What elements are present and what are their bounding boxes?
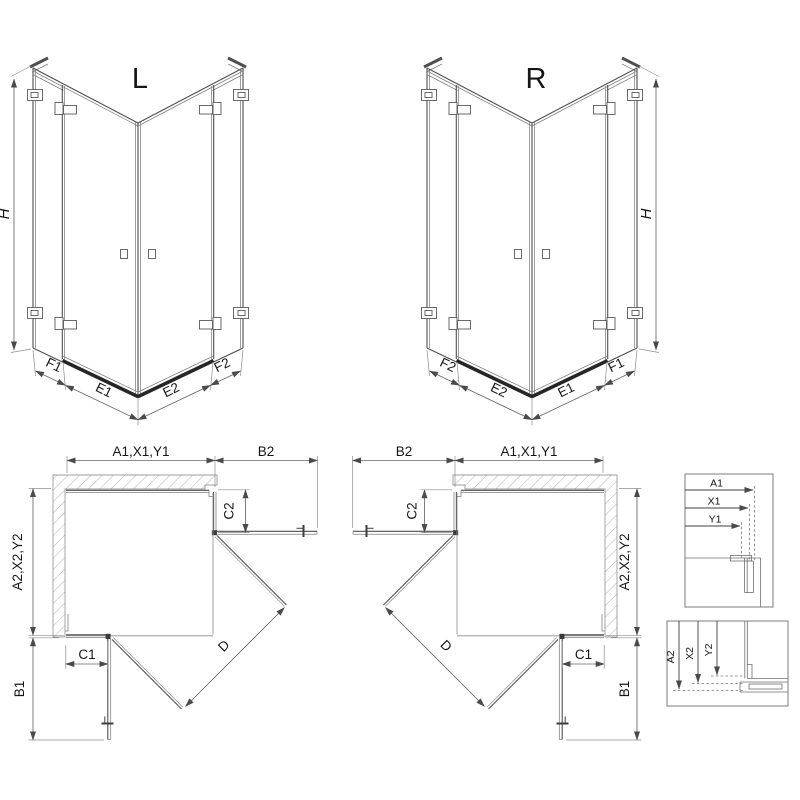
plan-left-dim-side-depth: A2,X2,Y2 [10,533,25,590]
plan-right-dim-left-panel: C2 [405,502,420,519]
iso-right-height-label: H [638,208,655,219]
plan-left-dim-diagonal: D [215,637,233,655]
detail-v-dim-y2: Y2 [703,643,715,656]
detail-v-dim-x2: X2 [684,647,696,660]
detail-h-dim-a1: A1 [710,478,723,490]
detail-box-vertical [667,621,788,706]
plan-right-dim-side-depth: A2,X2,Y2 [617,533,632,590]
plan-left-walls [53,475,217,637]
iso-left-height-label: H [0,208,13,219]
iso-left-dim-f1: F1 [44,355,65,375]
shower-enclosure-diagram: L H F1 E1 E2 F2 R H F2 E2 E1 F1 A1,X1,Y1… [0,0,800,800]
plan-left-dim-right-panel: C2 [222,502,237,519]
plan-right-dim-bottom-panel: C1 [575,647,592,662]
plan-left-dim-top-door: B2 [258,444,275,459]
detail-v-dim-a2: A2 [665,650,677,663]
iso-left-dim-f2: F2 [212,355,233,375]
plan-right-dim-top-width: A1,X1,Y1 [500,444,557,459]
iso-view-right [422,58,660,426]
plan-left-dim-bottom-door: B1 [12,681,27,698]
iso-right-dim-f1: F1 [606,355,627,375]
detail-h-dim-y1: Y1 [709,514,722,526]
plan-view-right [353,456,642,740]
plan-left-dim-bottom-panel: C1 [78,647,95,662]
plan-left-dim-top-width: A1,X1,Y1 [112,444,169,459]
iso-view-left [11,58,249,426]
iso-left-title: L [132,63,148,95]
plan-view-left [29,456,318,740]
plan-right-dim-bottom-door: B1 [617,681,632,698]
detail-box-horizontal [685,474,773,607]
plan-right-walls [453,475,617,637]
detail-h-dim-x1: X1 [708,496,721,508]
plan-right-dim-top-door: B2 [396,444,413,459]
plan-right-dim-diagonal: D [437,637,455,655]
technical-drawing-page: L H F1 E1 E2 F2 R H F2 E2 E1 F1 A1,X1,Y1… [0,0,800,800]
iso-right-title: R [526,63,547,95]
iso-right-dim-f2: F2 [438,355,459,375]
